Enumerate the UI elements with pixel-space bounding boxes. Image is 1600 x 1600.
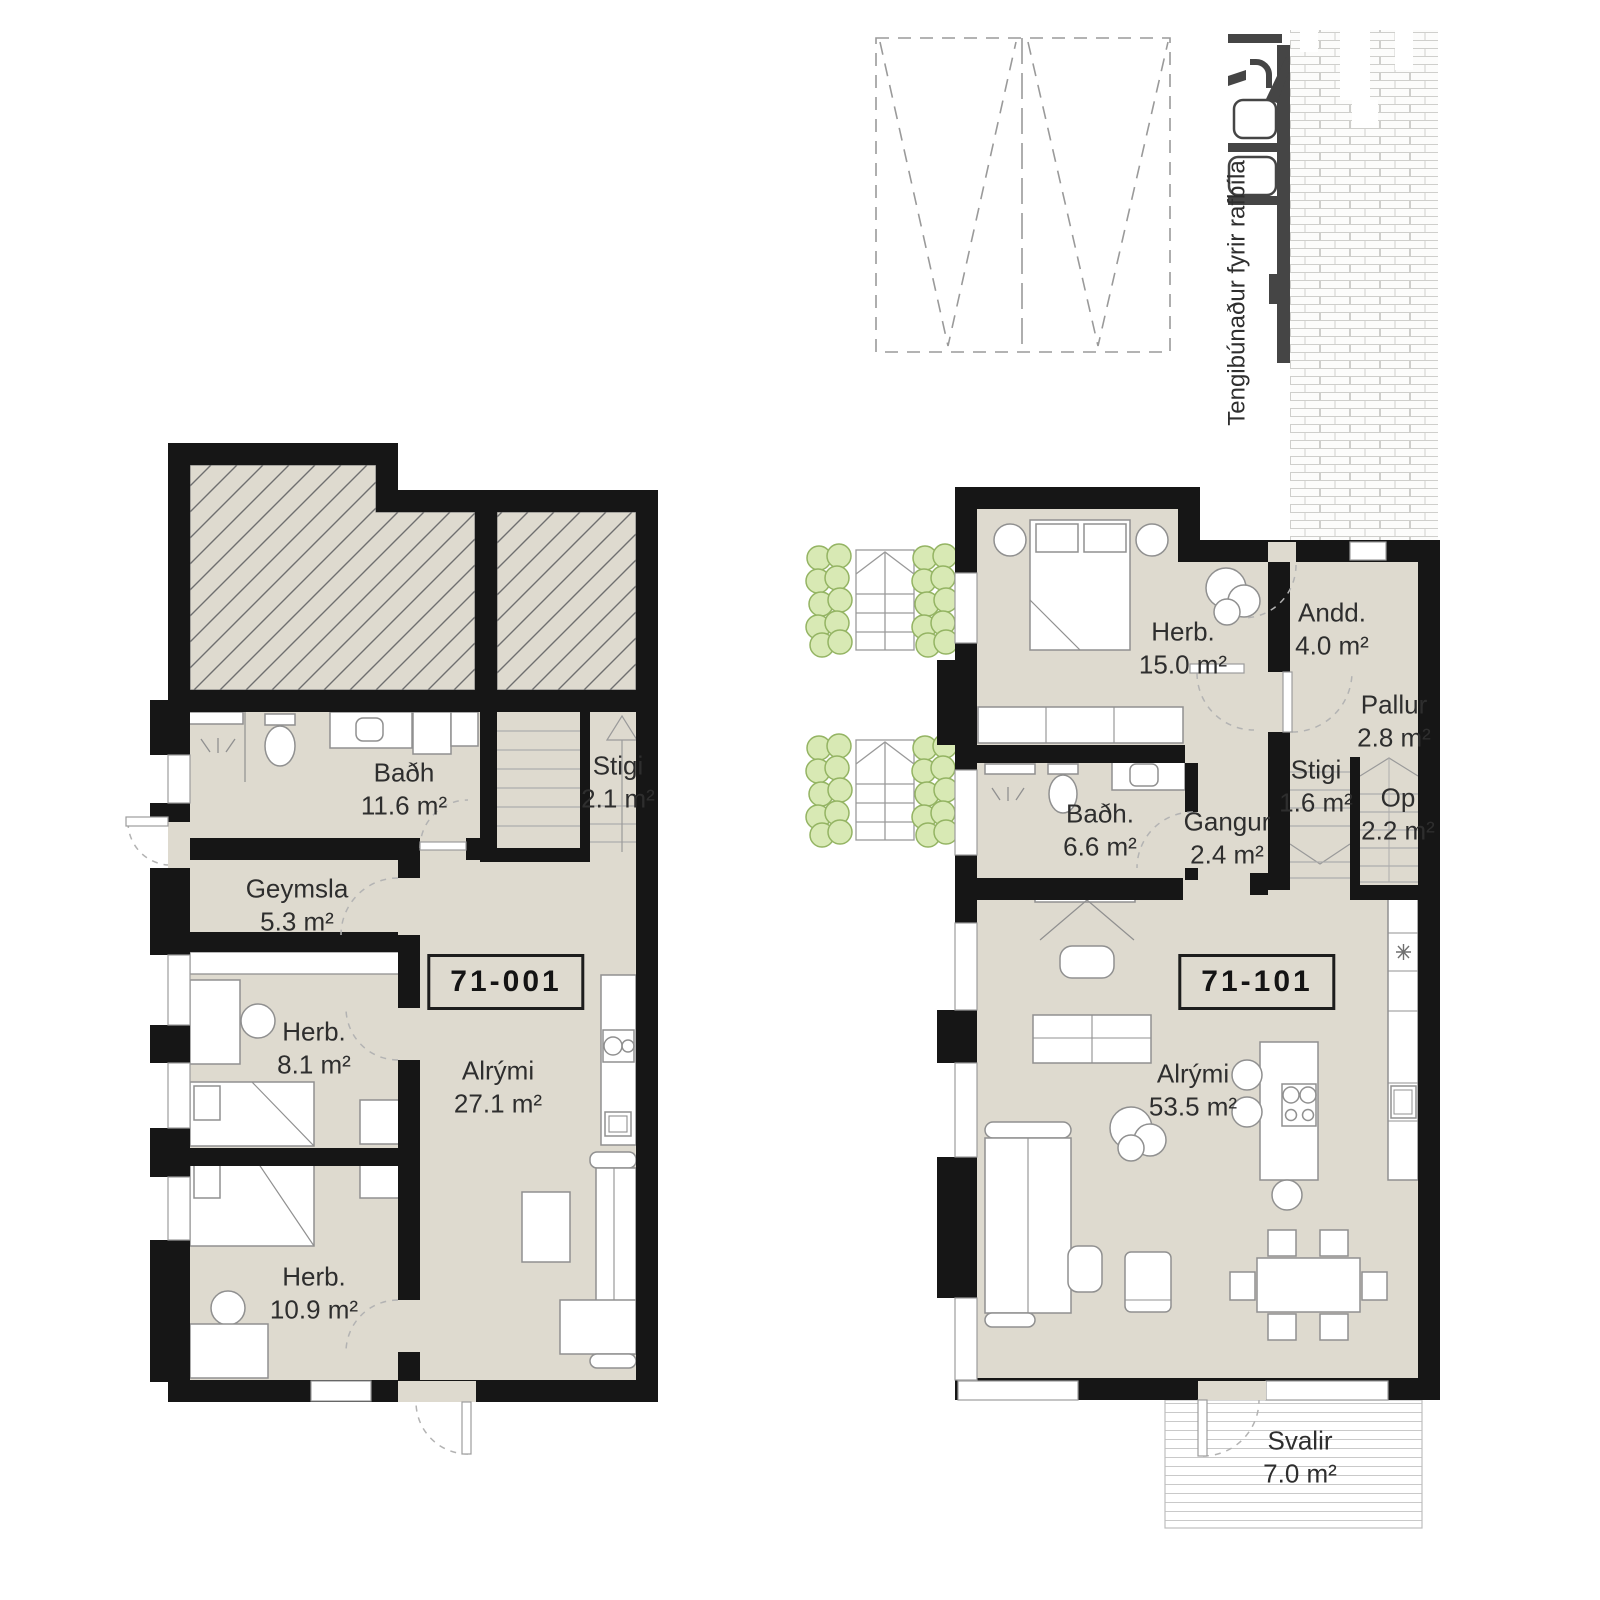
room-label-geymsla: Geymsla5.3 m² — [246, 873, 349, 940]
room-label-herb-81: Herb.8.1 m² — [277, 1016, 351, 1083]
room-label-herb-150: Herb.15.0 m² — [1139, 616, 1227, 683]
left-plan-71-001 — [126, 443, 658, 1454]
room-label-pallur: Pallur2.8 m² — [1357, 689, 1431, 756]
room-label-op: Op2.2 m² — [1361, 782, 1435, 849]
room-label-badh-right: Baðh.6.6 m² — [1063, 798, 1137, 865]
kitchen-counter — [1388, 893, 1418, 1180]
room-label-alrymi-left: Alrými27.1 m² — [454, 1055, 542, 1122]
room-label-herb-109: Herb.10.9 m² — [270, 1261, 358, 1328]
room-label-badh-left: Baðh11.6 m² — [361, 757, 447, 824]
storage-closet — [190, 952, 402, 974]
parking-area — [876, 38, 1170, 352]
unit-label-71-101: 71-101 — [1178, 954, 1335, 1010]
room-label-stigi-right: Stigi1.6 m² — [1279, 754, 1353, 821]
floorplan-drawing — [0, 0, 1600, 1600]
room-label-svalir: Svalir7.0 m² — [1263, 1425, 1337, 1492]
room-label-andd: Andd.4.0 m² — [1295, 597, 1369, 664]
unit-label-71-001: 71-001 — [427, 954, 584, 1010]
coffee-table — [522, 1192, 570, 1262]
brick-walkway — [1290, 30, 1438, 542]
room-label-gangur: Gangur2.4 m² — [1184, 806, 1271, 873]
room-label-stigi-left: Stigi2.1 m² — [581, 750, 655, 817]
freezer-asterisk-icon — [1396, 944, 1411, 960]
ev-charging-label: Tengibúnaður fyrir rafbíla — [1221, 160, 1252, 425]
floorplan-page: Baðh11.6 m² Stigi2.1 m² Geymsla5.3 m² He… — [0, 0, 1600, 1600]
exterior-stairs-lower — [856, 740, 914, 840]
room-label-alrymi-right: Alrými53.5 m² — [1149, 1058, 1237, 1125]
exterior-stairs-upper — [856, 550, 914, 650]
kitchen — [601, 975, 636, 1145]
